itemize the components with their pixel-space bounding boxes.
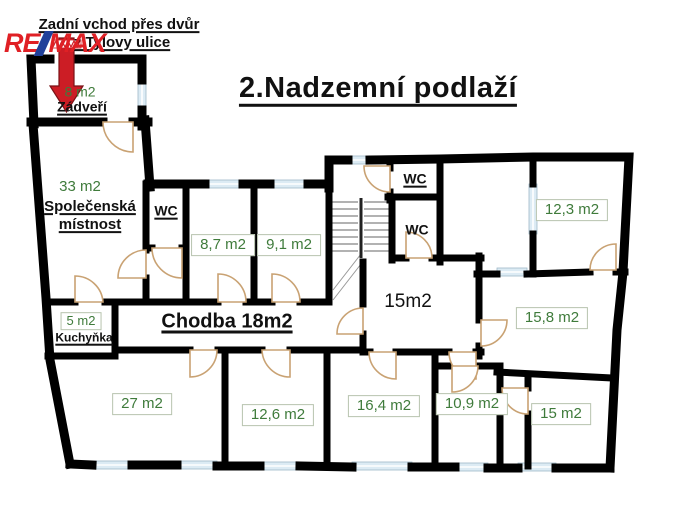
remax-logo-max: MAX bbox=[49, 28, 106, 58]
door-arc bbox=[118, 250, 146, 278]
room-name-zadveri: Zádveří bbox=[57, 100, 107, 115]
door-arc bbox=[152, 248, 182, 278]
door-arc bbox=[337, 308, 363, 334]
room-name-spolecenska-2: místnost bbox=[59, 217, 122, 233]
room-area-15-right: 15 m2 bbox=[531, 403, 591, 425]
room-name-chodba: Chodba 18m2 bbox=[161, 312, 292, 333]
door-arc bbox=[262, 350, 290, 377]
room-name-kuchynka: Kuchyňka bbox=[55, 332, 112, 345]
room-area-zadveri: 8 m2 bbox=[64, 85, 95, 100]
door-arc bbox=[364, 166, 390, 192]
door-arc bbox=[481, 320, 507, 346]
remax-logo: REMAX bbox=[4, 27, 106, 59]
room-area-12-6: 12,6 m2 bbox=[242, 404, 314, 426]
room-name-wc-mid: WC bbox=[405, 223, 428, 238]
room-name-wc-top: WC bbox=[403, 172, 426, 187]
door-arc bbox=[75, 276, 103, 302]
room-area-15-center: 15m2 bbox=[384, 292, 432, 312]
room-area-spolecenska: 33 m2 bbox=[59, 179, 101, 195]
room-area-16-4: 16,4 m2 bbox=[348, 395, 420, 417]
room-area-8-7: 8,7 m2 bbox=[191, 234, 255, 256]
door-arc bbox=[272, 274, 300, 302]
room-area-9-1: 9,1 m2 bbox=[257, 234, 321, 256]
room-name-spolecenska-1: Společenská bbox=[44, 199, 136, 215]
room-area-12-3: 12,3 m2 bbox=[536, 199, 608, 221]
door-arc bbox=[590, 244, 616, 270]
door-arc bbox=[103, 122, 133, 152]
room-name-wc-left: WC bbox=[154, 204, 177, 219]
floorplan-page: Zadní vchod přes dvůr z Tylovy ulice REM… bbox=[0, 0, 684, 510]
door-arc bbox=[452, 366, 478, 392]
page-title: 2.Nadzemní podlaží bbox=[239, 73, 517, 107]
door-arc bbox=[218, 274, 246, 302]
room-area-10-9: 10,9 m2 bbox=[436, 393, 508, 415]
door-arc bbox=[190, 350, 217, 377]
room-area-27: 27 m2 bbox=[112, 393, 172, 415]
door-arc bbox=[369, 352, 396, 379]
room-area-kuchynka: 5 m2 bbox=[61, 312, 102, 330]
room-area-15-8: 15,8 m2 bbox=[516, 307, 588, 329]
